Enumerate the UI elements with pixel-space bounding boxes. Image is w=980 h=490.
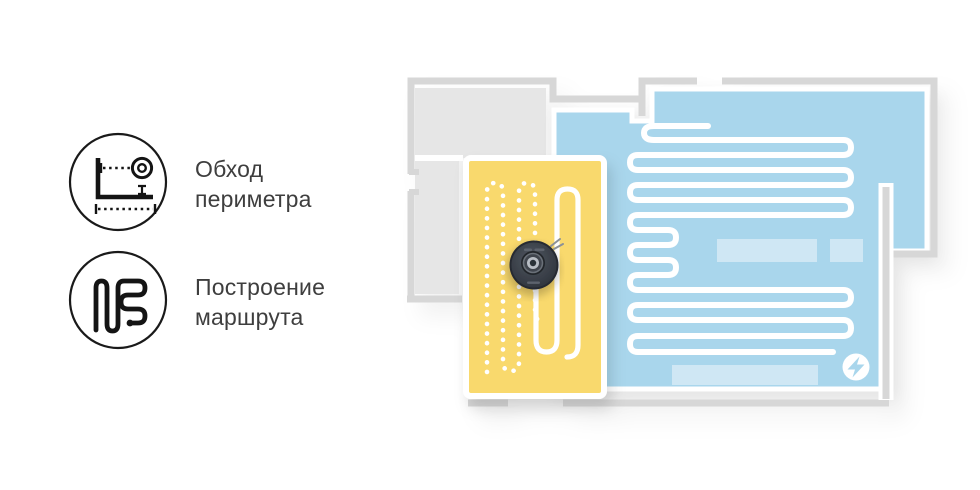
icon-circle — [70, 134, 166, 230]
mini-robot — [132, 158, 151, 177]
floorplan-illustration — [0, 0, 980, 490]
robot-logo-mark — [524, 249, 532, 252]
charging-dock — [843, 354, 870, 381]
feature-perimeter: Обход периметра — [68, 132, 312, 232]
feature-label-line: маршрута — [195, 302, 325, 332]
furniture-rect — [830, 239, 863, 262]
door-tick — [409, 169, 419, 175]
lidar-center — [530, 260, 536, 266]
feature-label-line: Обход — [195, 154, 312, 184]
feature-label-line: периметра — [195, 184, 312, 214]
robot-logo-mark — [535, 249, 545, 252]
page: Обход периметра Построение маршрута — [0, 0, 980, 490]
feature-label-line: Построение — [195, 272, 325, 302]
robot-sensor-mark — [527, 282, 540, 284]
door-tick — [409, 189, 419, 195]
feature-label-route: Построение маршрута — [195, 272, 325, 332]
perimeter-traversal-icon — [68, 132, 168, 232]
mini-robot-lidar — [138, 164, 146, 172]
route-glyph — [96, 281, 145, 331]
furniture-rect — [672, 365, 818, 385]
feature-route: Построение маршрута — [68, 250, 325, 350]
feature-label-perimeter: Обход периметра — [195, 154, 312, 214]
route-end-dot — [127, 320, 134, 327]
furniture-rect — [717, 239, 817, 262]
distance-mark — [138, 186, 146, 194]
route-icon-wrap — [68, 250, 168, 350]
perimeter-icon-wrap — [68, 132, 168, 232]
route-building-icon — [68, 250, 168, 350]
